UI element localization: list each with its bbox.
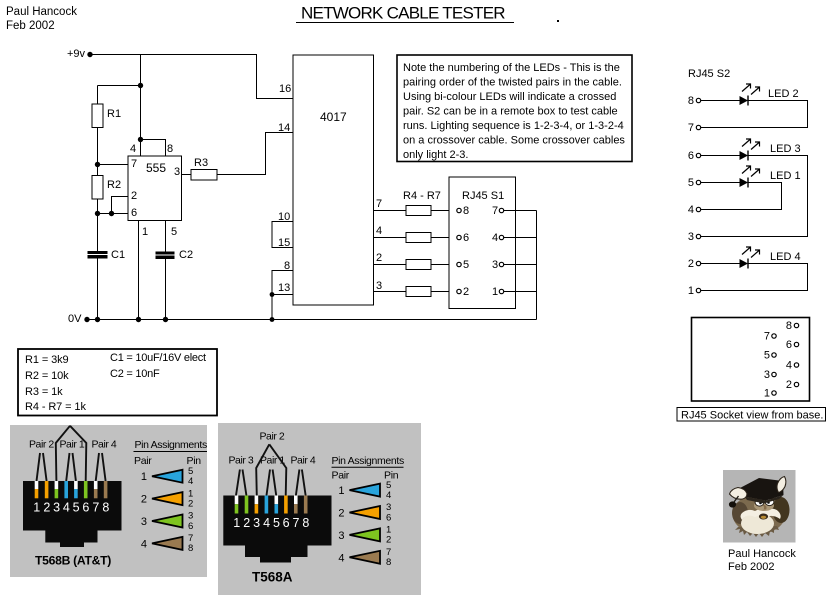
svg-text:4017: 4017 — [320, 110, 347, 124]
svg-text:3: 3 — [376, 280, 382, 292]
svg-text:RJ45 S1: RJ45 S1 — [462, 190, 504, 202]
svg-text:4: 4 — [263, 516, 270, 530]
svg-text:Paul Hancock: Paul Hancock — [728, 548, 796, 560]
svg-text:2: 2 — [338, 508, 344, 520]
svg-text:7: 7 — [764, 331, 770, 343]
svg-text:2: 2 — [43, 501, 50, 515]
svg-text:3: 3 — [764, 369, 770, 381]
svg-text:+9v: +9v — [67, 48, 86, 60]
svg-text:8: 8 — [284, 260, 290, 272]
svg-text:8: 8 — [188, 543, 193, 554]
svg-text:3: 3 — [688, 231, 694, 243]
svg-text:Feb 2002: Feb 2002 — [728, 561, 774, 573]
svg-text:7: 7 — [688, 122, 694, 134]
svg-text:4: 4 — [386, 490, 391, 501]
svg-text:C1: C1 — [111, 249, 125, 261]
svg-text:5: 5 — [273, 516, 280, 530]
svg-text:2: 2 — [786, 379, 792, 391]
svg-text:14: 14 — [278, 122, 290, 134]
svg-text:RJ45 Socket view from base.: RJ45 Socket view from base. — [681, 410, 823, 422]
svg-text:5: 5 — [688, 177, 694, 189]
svg-text:16: 16 — [279, 83, 291, 95]
svg-text:5: 5 — [73, 501, 80, 515]
svg-text:2: 2 — [131, 190, 137, 202]
svg-text:5: 5 — [463, 259, 469, 271]
svg-text:1: 1 — [33, 501, 40, 515]
svg-text:555: 555 — [146, 161, 166, 175]
svg-text:7: 7 — [293, 516, 300, 530]
svg-text:NETWORK CABLE TESTER: NETWORK CABLE TESTER — [301, 4, 505, 23]
svg-text:4: 4 — [376, 225, 382, 237]
svg-text:R2 = 10k: R2 = 10k — [25, 370, 69, 382]
svg-text:R4 - R7: R4 - R7 — [403, 190, 441, 202]
svg-text:Pair 2: Pair 2 — [260, 431, 285, 443]
svg-text:R1: R1 — [107, 108, 121, 120]
svg-text:4: 4 — [338, 552, 344, 564]
svg-text:2: 2 — [243, 516, 250, 530]
svg-text:R4 - R7 = 1k: R4 - R7 = 1k — [25, 401, 86, 413]
svg-text:8: 8 — [167, 143, 173, 155]
svg-text:2: 2 — [688, 258, 694, 270]
svg-text:C2 = 10nF: C2 = 10nF — [110, 368, 160, 380]
svg-text:R1 = 3k9: R1 = 3k9 — [25, 354, 69, 366]
svg-text:8: 8 — [102, 501, 109, 515]
svg-text:8: 8 — [463, 205, 469, 217]
svg-text:7: 7 — [92, 501, 99, 515]
svg-text:2: 2 — [376, 252, 382, 264]
svg-text:4: 4 — [130, 143, 136, 155]
svg-text:R2: R2 — [107, 179, 121, 191]
svg-text:6: 6 — [786, 339, 792, 351]
svg-text:1: 1 — [141, 471, 147, 483]
svg-text:Pair 1: Pair 1 — [60, 439, 85, 451]
svg-text:Feb 2002: Feb 2002 — [6, 20, 55, 32]
svg-text:1: 1 — [338, 485, 344, 497]
svg-text:4: 4 — [63, 501, 70, 515]
svg-text:4: 4 — [141, 538, 147, 550]
svg-text:Note the numbering of the LEDs: Note the numbering of the LEDs - This is… — [403, 62, 620, 74]
svg-text:7: 7 — [376, 198, 382, 210]
svg-text:6: 6 — [463, 232, 469, 244]
svg-text:8: 8 — [302, 516, 309, 530]
svg-text:15: 15 — [278, 237, 290, 249]
svg-text:1: 1 — [688, 285, 694, 297]
svg-text:6: 6 — [82, 501, 89, 515]
svg-text:3: 3 — [338, 530, 344, 542]
svg-text:8: 8 — [786, 320, 792, 332]
svg-text:6: 6 — [131, 207, 137, 219]
svg-text:runs. Lighting sequence is 1-2: runs. Lighting sequence is 1-2-3-4, or 1… — [403, 120, 624, 132]
svg-text:5: 5 — [764, 350, 770, 362]
svg-text:Pin Assignments: Pin Assignments — [332, 455, 404, 467]
svg-text:6: 6 — [688, 150, 694, 162]
svg-text:3: 3 — [253, 516, 260, 530]
svg-text:Pair 2: Pair 2 — [29, 439, 54, 451]
svg-text:6: 6 — [188, 521, 193, 532]
svg-text:2: 2 — [188, 498, 193, 509]
svg-text:3: 3 — [492, 259, 498, 271]
svg-text:LED 4: LED 4 — [770, 251, 801, 263]
svg-text:LED 3: LED 3 — [770, 143, 801, 155]
svg-text:2: 2 — [463, 286, 469, 298]
svg-text:1: 1 — [764, 388, 770, 400]
svg-text:8: 8 — [688, 95, 694, 107]
svg-text:4: 4 — [786, 360, 792, 372]
svg-text:Pin Assignments: Pin Assignments — [135, 439, 207, 451]
svg-text:5: 5 — [171, 226, 177, 238]
svg-text:C1 = 10uF/16V elect: C1 = 10uF/16V elect — [110, 352, 206, 364]
svg-text:4: 4 — [188, 476, 193, 487]
svg-text:RJ45 S2: RJ45 S2 — [688, 68, 730, 80]
svg-text:3: 3 — [174, 166, 180, 178]
svg-text:on a crossover cable. Some cro: on a crossover cable. Some crossover cab… — [403, 135, 625, 147]
svg-text:C2: C2 — [179, 249, 193, 261]
svg-text:Using bi-colour LEDs will indi: Using bi-colour LEDs will indicate a cro… — [403, 91, 616, 103]
svg-text:T568B (AT&T): T568B (AT&T) — [35, 554, 111, 568]
svg-text:pair. S2 can be in a remote bo: pair. S2 can be in a remote box to test … — [403, 106, 618, 118]
svg-text:T568A: T568A — [252, 570, 293, 585]
svg-text:7: 7 — [131, 158, 137, 170]
svg-text:Pair: Pair — [134, 455, 152, 467]
svg-text:Paul Hancock: Paul Hancock — [6, 6, 77, 18]
svg-text:Pair 4: Pair 4 — [92, 439, 117, 451]
svg-text:7: 7 — [492, 205, 498, 217]
svg-text:LED 1: LED 1 — [770, 170, 801, 182]
svg-text:only light 2-3.: only light 2-3. — [403, 149, 468, 161]
svg-text:LED 2: LED 2 — [768, 88, 799, 100]
svg-text:3: 3 — [53, 501, 60, 515]
svg-text:1: 1 — [142, 226, 148, 238]
svg-text:pairing order of the twisted p: pairing order of the twisted pairs in th… — [403, 77, 622, 89]
svg-text:Pair 3: Pair 3 — [229, 455, 254, 467]
svg-text:1: 1 — [492, 286, 498, 298]
svg-text:6: 6 — [386, 512, 391, 523]
svg-text:8: 8 — [386, 557, 391, 568]
svg-text:0V: 0V — [68, 313, 82, 325]
svg-text:4: 4 — [688, 204, 694, 216]
svg-text:1: 1 — [233, 516, 240, 530]
svg-text:Pair: Pair — [332, 470, 350, 482]
svg-text:4: 4 — [492, 232, 498, 244]
svg-text:2: 2 — [386, 535, 391, 546]
svg-text:R3 = 1k: R3 = 1k — [25, 386, 63, 398]
svg-text:10: 10 — [278, 211, 290, 223]
svg-text:2: 2 — [141, 494, 147, 506]
svg-text:6: 6 — [283, 516, 290, 530]
svg-text:13: 13 — [278, 282, 290, 294]
svg-text:3: 3 — [141, 516, 147, 528]
svg-text:R3: R3 — [194, 157, 208, 169]
svg-text:Pair 4: Pair 4 — [291, 455, 316, 467]
